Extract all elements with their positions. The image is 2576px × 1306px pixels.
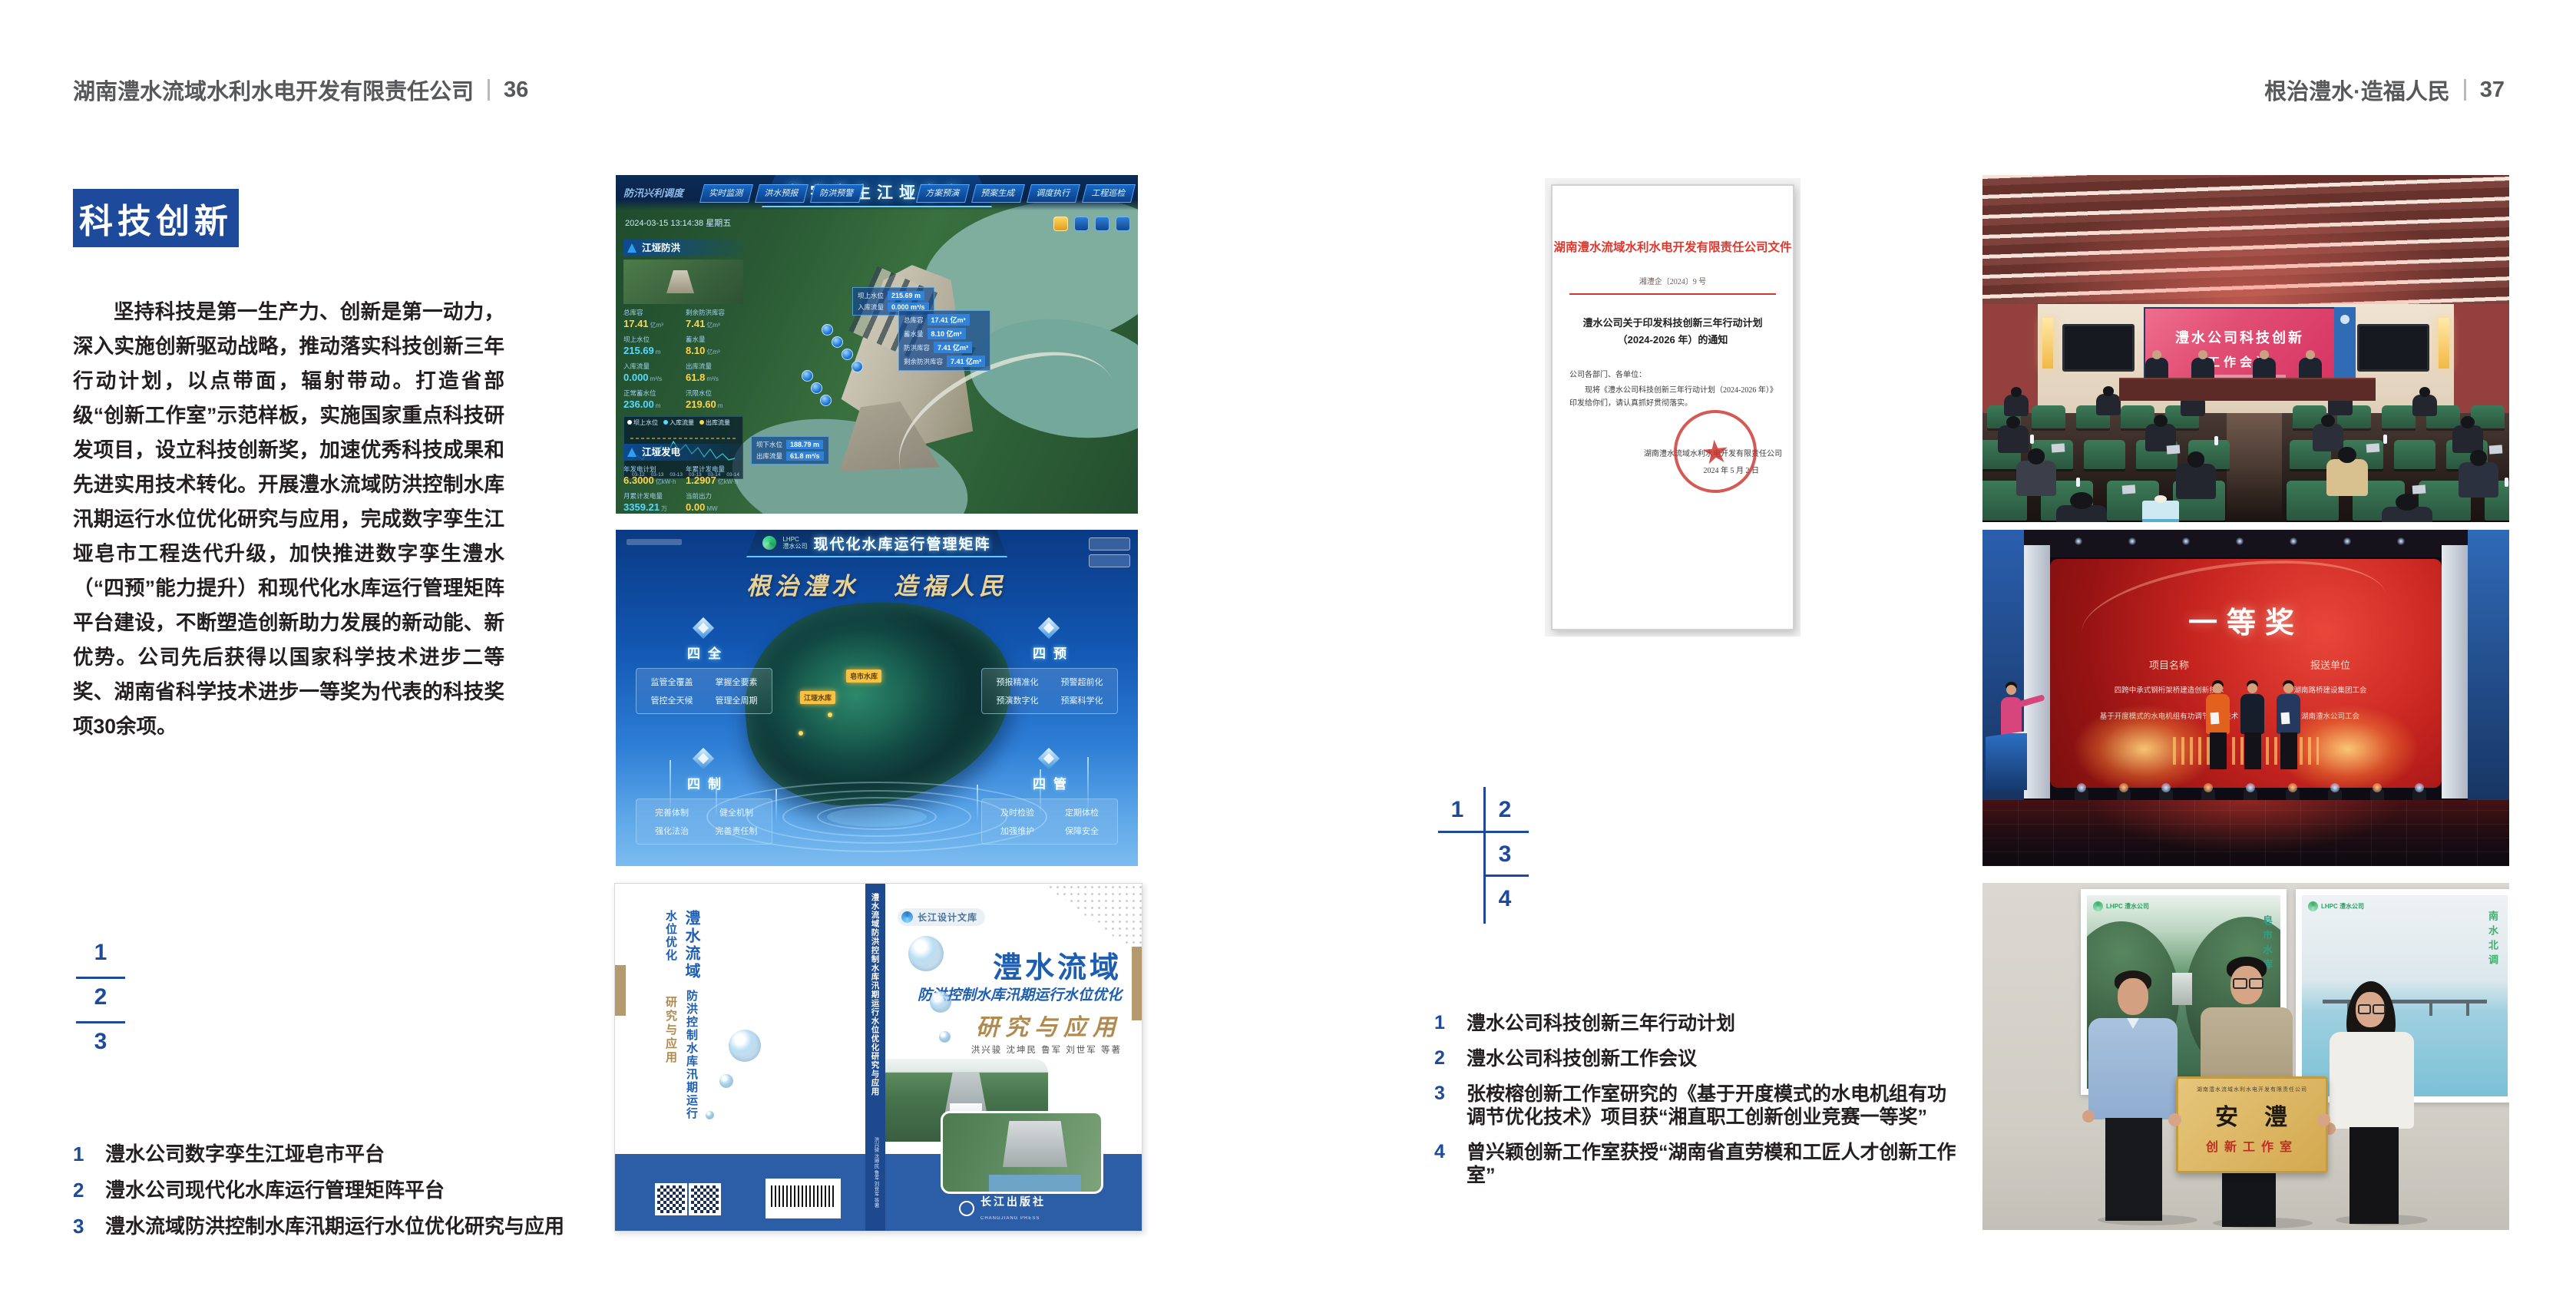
glasses-lens — [2358, 1004, 2371, 1014]
stat: 年累计发电量1.2907亿kW·h — [686, 465, 743, 488]
column-row: 四跨中承式钢桁架桥建造创新技术 — [2088, 684, 2250, 695]
stat-value: 8.10 — [686, 345, 705, 356]
figure-meeting-photo: 澧水公司科技创新 工作会议 — [1982, 175, 2509, 522]
stat: 汛限水位219.60m — [686, 388, 743, 412]
photo-water — [989, 1175, 1081, 1192]
panel-item: 预演数字化 — [987, 694, 1048, 706]
motto: 根治澧水·造福人民 — [2264, 74, 2450, 106]
stat-value: 1.2907 — [686, 474, 716, 486]
section-title: 科技创新 — [73, 189, 239, 247]
unit-marker — [852, 361, 863, 372]
slogan-part2: 造福人民 — [894, 567, 1007, 601]
tab-realtime-monitor: 实时监测 — [699, 184, 753, 203]
tip-label: 防洪库容 — [904, 343, 930, 352]
figure-marker-2: 2 — [85, 984, 116, 1010]
stat-unit: 亿m³ — [650, 322, 663, 329]
spine-title: 澧水流域防洪控制水库汛期运行水位优化研究与应用 — [870, 893, 881, 1096]
attendee — [2412, 395, 2437, 416]
wall-lamp — [2439, 318, 2449, 369]
logo-text: LHPC澧水公司 — [782, 536, 807, 550]
caption-number: 1 — [1434, 1012, 1459, 1034]
nav-tabs-left: 实时监测 洪水预报 防洪预警 — [702, 184, 861, 203]
qr-code — [689, 1183, 721, 1215]
slogan-part1: 根治澧水 — [746, 567, 860, 601]
stat-label: 年发电计划 — [623, 465, 681, 474]
stat-value: 219.60 — [686, 398, 716, 410]
plaque-title: 安 澧 — [2178, 1098, 2326, 1132]
stat: 出库流量61.8m³/s — [686, 362, 743, 385]
stat-unit: m — [656, 402, 661, 409]
figure-marker-4: 4 — [1490, 886, 1520, 912]
wall-tv — [2062, 324, 2135, 372]
figure-marker-1: 1 — [1442, 797, 1473, 823]
document-title-line2: （2024-2026 年）的通知 — [1553, 332, 1793, 346]
stat-value: 236.00 — [623, 398, 654, 410]
light-glow — [2415, 783, 2424, 792]
tip-value: 188.79 m — [786, 440, 823, 449]
light-pillar — [977, 785, 978, 823]
tooltip-row: 坝上水位215.69 m — [858, 291, 929, 300]
stat-value: 0.00 — [686, 501, 705, 513]
figure-book-cover: 澧水流域 防洪控制水库汛期运行水位优化 研究与应用 澧水流域防洪控制水库汛期运行… — [614, 883, 1143, 1232]
panel-icon — [693, 749, 716, 769]
document-red-header: 湖南澧水流域水利水电开发有限责任公司文件 — [1553, 238, 1793, 255]
presenter-head — [2247, 683, 2257, 693]
water-droplet — [930, 991, 951, 1013]
caption-item: 3 澧水流域防洪控制水库汛期运行水位优化研究与应用 — [73, 1215, 610, 1238]
plaque-org-line: 湖南澧水流域水利水电开发有限责任公司 — [2178, 1086, 2326, 1093]
publisher-name: 长江出版社 — [980, 1196, 1046, 1208]
panel-siyu: 四预 预报精准化 预警超前化 预演数字化 预案科学化 — [981, 619, 1118, 714]
chair — [2394, 440, 2435, 469]
layers-icon — [1074, 217, 1089, 231]
caption-item: 2 澧水公司现代化水库运行管理矩阵平台 — [73, 1179, 610, 1202]
stage-light — [2236, 537, 2244, 545]
glasses-lens — [2233, 978, 2247, 989]
attendee — [2096, 394, 2121, 415]
recipient-legs — [2210, 732, 2227, 769]
panel-item: 管控全天候 — [641, 694, 703, 706]
unit-marker — [832, 336, 843, 348]
dais-table — [2119, 378, 2376, 401]
tan-accent-bar — [1132, 947, 1142, 1020]
screen-pillar — [2442, 545, 2468, 798]
laptop — [2412, 484, 2426, 494]
stage-light — [2343, 537, 2351, 545]
figure-official-document: 湖南澧水流域水利水电开发有限责任公司文件 湘澧企〔2024〕9 号 澧水公司关于… — [1545, 178, 1801, 636]
caption-item: 1 澧水公司科技创新三年行动计划 — [1434, 1012, 1964, 1035]
caption-text: 澧水公司现代化水库运行管理矩阵平台 — [105, 1179, 445, 1202]
panel-siguan: 四管 及时检验 定期体检 加强维护 保障安全 — [981, 749, 1118, 845]
panel-name: 四制 — [636, 773, 772, 792]
document-salutation: 公司各部门、各单位： — [1569, 369, 1781, 382]
map-dot — [828, 713, 832, 717]
power-panel: 江垭发电 年发电计划6.3000亿kW·h 年累计发电量1.2907亿kW·h … — [623, 444, 743, 514]
panel-siquan: 四全 监管全覆盖 掌握全要素 管控全天候 管理全周期 — [636, 619, 772, 714]
stat-label: 汛限水位 — [686, 388, 743, 398]
tissue-puff — [2154, 495, 2167, 503]
stat-label: 蓄水量 — [686, 335, 743, 344]
figure-award-stage-photo: 一等奖 项目名称 四跨中承式钢桁架桥建造创新技术 基于开度模式的水电机组有功调节… — [1982, 530, 2509, 866]
wall-lamp — [2042, 318, 2053, 369]
tab-flood-warning: 防洪预警 — [810, 184, 864, 203]
stat-label: 正常蓄水位 — [623, 388, 681, 398]
back-title-tail: 研究与应用 — [664, 996, 677, 1065]
legend-label: 入库流量 — [670, 419, 694, 426]
recipient-head — [2283, 683, 2293, 693]
publisher-logo: 长江出版社CHANGJIANG PRESS — [959, 1194, 1046, 1223]
laptop — [2366, 443, 2380, 452]
stat-unit: 亿kW·h — [656, 478, 676, 485]
water-bottle — [2214, 436, 2218, 445]
tip-value: 7.41 亿m³ — [934, 342, 972, 353]
stat: 年发电计划6.3000亿kW·h — [623, 465, 681, 488]
red-seal: ★ — [1670, 406, 1761, 498]
poster-logo: LHPC 澧水公司 — [2093, 901, 2149, 911]
caption-text: 澧水流域防洪控制水库汛期运行水位优化研究与应用 — [105, 1215, 564, 1238]
caption-text: 澧水公司科技创新工作会议 — [1467, 1047, 1697, 1070]
stat-unit: MW — [706, 505, 717, 512]
screen-pillar — [2024, 545, 2050, 798]
company-logo-icon — [762, 536, 776, 550]
thumbnail-dam — [666, 270, 694, 293]
tip-label: 坝下水位 — [756, 440, 782, 449]
water-droplet — [729, 1030, 761, 1062]
stat-value: 215.69 — [623, 345, 654, 356]
column-row: 湖南路桥建设集团工会 — [2250, 684, 2411, 695]
hand-on-plaque — [2168, 1113, 2181, 1126]
stat-label: 入库流量 — [623, 362, 681, 371]
column-header: 报送单位 — [2250, 657, 2411, 672]
stat-label: 剩余防洪库容 — [686, 308, 743, 317]
light-glow — [2161, 783, 2171, 792]
attendee-head — [2028, 448, 2045, 464]
ripple-glow — [827, 807, 927, 827]
bridge-pier — [2429, 1003, 2432, 1016]
panel-item: 完善责任制 — [706, 825, 767, 837]
figure-marker-2: 2 — [1490, 797, 1520, 823]
chair — [2382, 405, 2416, 428]
figure-marker-3: 3 — [1490, 841, 1520, 868]
poster-logo: LHPC 澧水公司 — [2308, 901, 2364, 911]
recipient-legs — [2280, 732, 2297, 769]
attendee-head — [2070, 492, 2092, 509]
publisher-name-en: CHANGJIANG PRESS — [980, 1216, 1040, 1221]
light-pillar — [775, 789, 777, 823]
caption-item: 1 澧水公司数字孪生江垭皂市平台 — [73, 1142, 610, 1166]
presenter-suit — [2240, 694, 2264, 734]
stage-light — [2128, 537, 2136, 545]
panel-item: 强化法治 — [641, 825, 703, 837]
stat-value: 61.8 — [686, 372, 705, 383]
panel-item: 预案科学化 — [1051, 694, 1113, 706]
map-marker-jiangya: 江垭水库 — [800, 691, 835, 704]
stat: 总库容17.41亿m³ — [623, 308, 681, 331]
attendee — [1998, 425, 2029, 453]
panel-item: 掌握全要素 — [706, 676, 767, 688]
tip-label: 坝上水位 — [858, 291, 884, 300]
panel-icon — [1038, 619, 1061, 639]
nav-tabs-right: 方案预演 预案生成 调度执行 工程巡检 — [918, 184, 1133, 203]
light-glow — [2204, 783, 2213, 792]
legend-dot — [699, 420, 704, 425]
tip-label: 入库流量 — [858, 303, 884, 312]
award-title: 一等奖 — [2050, 599, 2442, 641]
tip-value: 7.41 亿m³ — [947, 355, 985, 367]
panelist-head — [2260, 350, 2269, 359]
glasses-lens — [2373, 1004, 2386, 1014]
attendee-head — [2006, 416, 2020, 428]
series-name: 长江设计文库 — [918, 911, 977, 924]
caption-number: 3 — [73, 1215, 98, 1238]
panel-title: 江垭防洪 — [642, 243, 680, 253]
panel-item: 加强维护 — [987, 825, 1048, 837]
figure-group-photo: LHPC 澧水公司 皂市水库 LHPC 澧水公司 南水北调 — [1982, 883, 2509, 1230]
attendee — [2004, 395, 2029, 416]
panel-item: 预警超前化 — [1051, 676, 1113, 688]
light-glow — [2077, 783, 2086, 792]
light-glow — [2246, 783, 2255, 792]
man-left-face — [2118, 978, 2148, 1015]
matrix-header: LHPC澧水公司 现代化水库运行管理矩阵 — [746, 530, 1007, 557]
qr-code — [655, 1183, 687, 1215]
water-droplet — [908, 936, 944, 971]
stat: 入库流量0.000m³/s — [623, 362, 681, 385]
man-left-polo — [2088, 1018, 2178, 1119]
right-captions: 1 澧水公司科技创新三年行动计划 2 澧水公司科技创新工作会议 3 张桉榕创新工… — [1434, 1012, 1964, 1187]
legend-label: 坝上水位 — [633, 419, 658, 426]
tooltip-downstream: 坝下水位188.79 m 出库流量61.8 m³/s — [751, 436, 829, 465]
locate-icon — [1095, 217, 1109, 231]
tab-flood-forecast: 洪水预报 — [755, 184, 809, 203]
unit-marker — [811, 382, 822, 394]
man-left-hand — [2082, 1110, 2095, 1122]
recipient-head — [2213, 683, 2223, 693]
book-title-main: 澧水流域 — [993, 944, 1122, 986]
laptop — [2122, 484, 2136, 494]
tip-label: 总库容 — [904, 316, 924, 325]
dam-thumbnail — [623, 260, 743, 304]
unit-marker — [820, 395, 832, 406]
panel-sizhi: 四制 完善体制 健全机制 强化法治 完善责任制 — [636, 749, 772, 845]
spine-authors: 洪兴骏 沈坤民 鲁军 刘世军 等著 — [871, 1137, 879, 1208]
panel-item: 定期体检 — [1051, 806, 1113, 818]
tip-label: 出库流量 — [756, 451, 782, 461]
module-label: 防汛兴利调度 — [623, 185, 683, 200]
stat-value: 17.41 — [623, 318, 649, 329]
panel-title: 江垭发电 — [642, 447, 680, 458]
stat: 蓄水量8.10亿m³ — [686, 335, 743, 358]
tooltip-row: 剩余防洪库容7.41 亿m³ — [904, 355, 985, 367]
column-header: 项目名称 — [2088, 657, 2250, 672]
tooltip-capacity: 总库容17.41 亿m³ 蓄水量8.10 亿m³ 防洪库容7.41 亿m³ 剩余… — [898, 310, 990, 371]
tan-accent-bar — [615, 965, 626, 1016]
caption-number: 3 — [1434, 1083, 1459, 1105]
attendee-head — [2187, 451, 2205, 467]
header-button — [1089, 554, 1130, 567]
legend-label: 出库流量 — [706, 419, 730, 426]
panel-name: 四预 — [981, 643, 1118, 662]
back-cover-title: 澧水流域 防洪控制水库汛期运行水位优化 研究与应用 — [661, 910, 703, 1132]
figure-marker-rule — [76, 1021, 125, 1023]
innovation-workshop-plaque: 湖南澧水流域水利水电开发有限责任公司 安 澧 创新工作室 — [2176, 1076, 2328, 1173]
stage-light — [2182, 537, 2190, 545]
logo-line2: 澧水公司 — [782, 543, 807, 550]
document-title-line1: 澧水公司关于印发科技创新三年行动计划 — [1553, 315, 1793, 329]
stat-label: 月累计发电量 — [623, 491, 681, 501]
panel-items: 监管全覆盖 掌握全要素 管控全天候 管理全周期 — [636, 668, 772, 714]
panel-item: 监管全覆盖 — [641, 676, 703, 688]
floor-grid — [1982, 800, 2509, 866]
poster-logo-icon — [2308, 901, 2318, 911]
panelist-head — [2198, 350, 2207, 359]
chair — [2084, 440, 2125, 469]
tip-value: 61.8 m³/s — [786, 451, 824, 461]
stat-unit: m — [718, 402, 723, 409]
document-body: 现将《澧水公司科技创新三年行动计划（2024-2026 年）》印发给你们，请认真… — [1569, 384, 1781, 410]
caption-text: 澧水公司数字孪生江垭皂市平台 — [105, 1142, 385, 1166]
figure-matrix-platform: LHPC澧水公司 现代化水库运行管理矩阵 根治澧水 造福人民 四全 监管全覆盖 … — [616, 530, 1138, 866]
back-title-main: 澧水流域 — [683, 910, 699, 980]
attendee-head — [2461, 416, 2475, 428]
qr-pattern — [691, 1185, 719, 1213]
barcode — [766, 1179, 841, 1218]
attendee-head — [2011, 387, 2022, 396]
ceiling-glow — [1982, 175, 2509, 304]
panelist — [2145, 358, 2168, 379]
attendee-head — [2338, 447, 2356, 463]
tip-label: 蓄水量 — [904, 329, 924, 339]
ceiling-truss — [1982, 530, 2509, 557]
left-page-header: 湖南澧水流域水利水电开发有限责任公司 36 — [73, 74, 528, 106]
tissue-box — [2142, 501, 2179, 522]
attendee — [2382, 507, 2432, 522]
stat-label: 出库流量 — [686, 362, 743, 371]
water-bottle — [2030, 435, 2034, 444]
bridge-pier — [2466, 1003, 2469, 1016]
tooltip-row: 坝下水位188.79 m — [756, 440, 824, 449]
power-stats: 年发电计划6.3000亿kW·h 年累计发电量1.2907亿kW·h 月累计发电… — [623, 465, 743, 514]
attendee — [2176, 464, 2216, 499]
legend-dot — [627, 420, 632, 425]
attendee — [2313, 424, 2343, 451]
panel-item: 健全机制 — [706, 806, 767, 818]
panel-item: 管理全周期 — [706, 694, 767, 706]
panel-icon — [1038, 749, 1061, 769]
stat-unit: 亿kW·h — [718, 478, 739, 485]
woman-trousers — [2349, 1127, 2399, 1224]
stage-floor — [1982, 800, 2509, 866]
caption-item: 4 曾兴颖创新工作室获授“湖南省直劳模和工匠人才创新工作室” — [1434, 1141, 1964, 1187]
date-placeholder — [627, 539, 682, 545]
marker-grid-vline — [1483, 787, 1486, 924]
header-divider — [2464, 79, 2466, 101]
panelist-head — [2306, 350, 2315, 359]
attendee-head — [2470, 450, 2488, 465]
tab-plan-generate: 预案生成 — [971, 184, 1025, 203]
panel-icon — [627, 448, 637, 457]
attendee — [2016, 461, 2056, 496]
panel-item: 保障安全 — [1051, 825, 1113, 837]
award-trophy — [2210, 713, 2219, 725]
stat: 剩余防洪库容7.41亿m³ — [686, 308, 743, 331]
stat-unit: m — [656, 349, 661, 355]
panel-header: 江垭防洪 — [623, 240, 743, 256]
stage-light — [2290, 537, 2297, 545]
panelist-head — [2152, 350, 2161, 359]
presenter-legs — [2244, 732, 2261, 769]
datetime-label: 2024-03-15 13:14:38 星期五 — [625, 217, 731, 229]
screen-title-line1: 澧水公司科技创新 — [2145, 327, 2334, 347]
attendee-head — [2103, 386, 2114, 395]
poster-logo-text: LHPC 澧水公司 — [2321, 902, 2364, 911]
tooltip-row: 防洪库容7.41 亿m³ — [904, 342, 985, 353]
logo-dot — [2340, 315, 2349, 324]
settings-icon — [1116, 217, 1130, 231]
stat-label: 总库容 — [623, 308, 681, 317]
unit-marker — [842, 349, 853, 360]
stat-value: 0.000 — [623, 372, 649, 383]
page-number-right: 37 — [2480, 78, 2505, 103]
toolbar-icons — [1053, 217, 1130, 231]
panel-item: 及时检验 — [987, 806, 1048, 818]
marker-grid-hline — [1483, 875, 1529, 877]
stat-unit: m³/s — [650, 375, 663, 382]
panel-name: 四全 — [636, 643, 772, 662]
unit-marker — [802, 370, 813, 382]
stat-unit: 亿m³ — [706, 322, 719, 329]
center-aisle — [2227, 413, 2282, 522]
unit-marker — [822, 324, 833, 336]
stat-label: 年累计发电量 — [686, 465, 743, 474]
header-divider — [488, 79, 490, 101]
document-number: 湘澧企〔2024〕9 号 — [1553, 275, 1793, 286]
map-dot — [799, 731, 803, 736]
document-page: 湖南澧水流域水利水电开发有限责任公司文件 湘澧企〔2024〕9 号 澧水公司关于… — [1551, 184, 1794, 630]
caption-text: 张桉榕创新工作室研究的《基于开度模式的水电机组有功调节优化技术》项目获“湘直职工… — [1467, 1083, 1964, 1129]
panel-name: 四管 — [981, 773, 1118, 792]
laptop — [2052, 443, 2065, 452]
matrix-title: 现代化水库运行管理矩阵 — [813, 533, 990, 554]
caption-number: 1 — [73, 1142, 98, 1166]
book-spine: 澧水流域防洪控制水库汛期运行水位优化研究与应用 洪兴骏 沈坤民 鲁军 刘世军 等… — [865, 884, 885, 1231]
book-title-tail: 研究与应用 — [976, 1008, 1122, 1042]
water-droplet — [719, 1074, 733, 1088]
tab-project-patrol: 工程巡检 — [1082, 184, 1136, 203]
tooltip-row: 出库流量61.8 m³/s — [756, 451, 824, 461]
light-glow — [2373, 783, 2382, 792]
figure-marker-3: 3 — [85, 1029, 116, 1055]
stat-unit: m³/s — [706, 375, 719, 382]
tip-value: 8.10 亿m³ — [928, 328, 966, 339]
tip-value: 215.69 m — [888, 291, 924, 300]
body-paragraph: 坚持科技是第一生产力、创新是第一动力，深入实施创新驱动战略，推动落实科技创新三年… — [73, 295, 504, 744]
plaque-subtitle: 创新工作室 — [2178, 1136, 2326, 1155]
logo-line1: LHPC — [782, 536, 799, 543]
poster-logo-icon — [2093, 901, 2103, 911]
attendee-head — [2321, 415, 2335, 427]
attendee-head — [2154, 415, 2168, 427]
panelist — [2299, 358, 2322, 379]
red-wall-panel — [2454, 304, 2509, 413]
caption-number: 2 — [73, 1179, 98, 1202]
caption-number: 4 — [1434, 1141, 1459, 1163]
stat-label: 当前出力 — [686, 491, 743, 501]
light-glow — [2288, 783, 2297, 792]
panel-item: 预报精准化 — [987, 676, 1048, 688]
woman-tshirt — [2330, 1032, 2414, 1129]
light-glow — [2330, 783, 2340, 792]
